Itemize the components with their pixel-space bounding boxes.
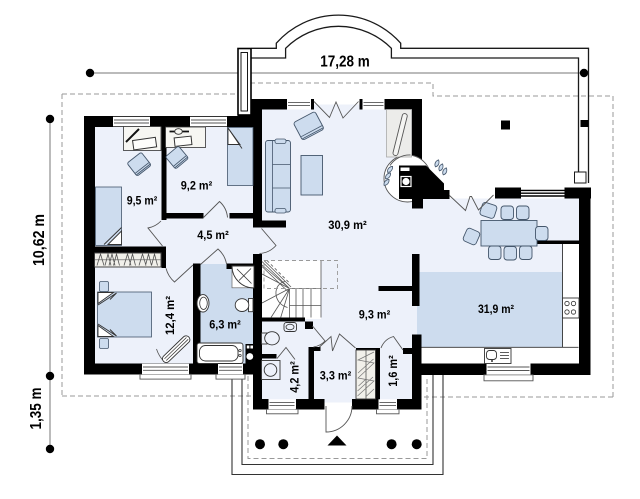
svg-text:9,5 m²: 9,5 m²: [127, 194, 158, 208]
svg-text:1,35 m: 1,35 m: [28, 388, 45, 430]
svg-text:9,2 m²: 9,2 m²: [181, 179, 213, 193]
svg-text:6,3 m²: 6,3 m²: [209, 318, 241, 332]
svg-text:10,62 m: 10,62 m: [31, 214, 48, 266]
svg-text:4,5 m²: 4,5 m²: [197, 228, 229, 242]
svg-text:3,3 m²: 3,3 m²: [320, 368, 352, 382]
svg-text:12,4 m²: 12,4 m²: [163, 296, 177, 335]
svg-text:9,3 m²: 9,3 m²: [359, 308, 391, 322]
svg-text:4,2 m²: 4,2 m²: [288, 361, 302, 393]
svg-text:31,9 m²: 31,9 m²: [478, 302, 514, 316]
svg-text:30,9 m²: 30,9 m²: [328, 218, 367, 232]
svg-text:1,6 m²: 1,6 m²: [386, 355, 400, 387]
svg-text:17,28 m: 17,28 m: [320, 54, 370, 71]
